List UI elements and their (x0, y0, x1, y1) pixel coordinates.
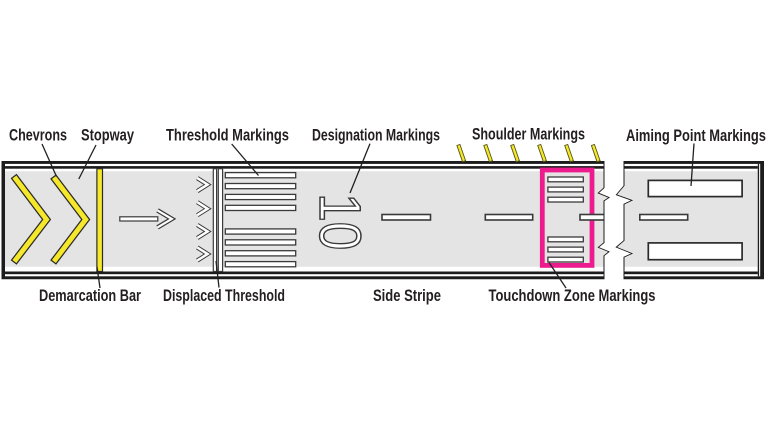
svg-text:Demarcation Bar: Demarcation Bar (39, 287, 142, 305)
svg-text:Shoulder Markings: Shoulder Markings (472, 126, 585, 144)
svg-text:10: 10 (307, 193, 372, 250)
svg-text:Threshold Markings: Threshold Markings (166, 126, 289, 144)
svg-text:Side Stripe: Side Stripe (373, 287, 441, 305)
svg-text:Designation Markings: Designation Markings (312, 126, 440, 144)
svg-text:Aiming Point Markings: Aiming Point Markings (626, 127, 766, 145)
svg-text:Stopway: Stopway (81, 126, 134, 144)
svg-text:Touchdown Zone Markings: Touchdown Zone Markings (489, 287, 656, 305)
svg-text:Displaced Threshold: Displaced Threshold (163, 287, 285, 305)
svg-text:Chevrons: Chevrons (9, 126, 67, 144)
